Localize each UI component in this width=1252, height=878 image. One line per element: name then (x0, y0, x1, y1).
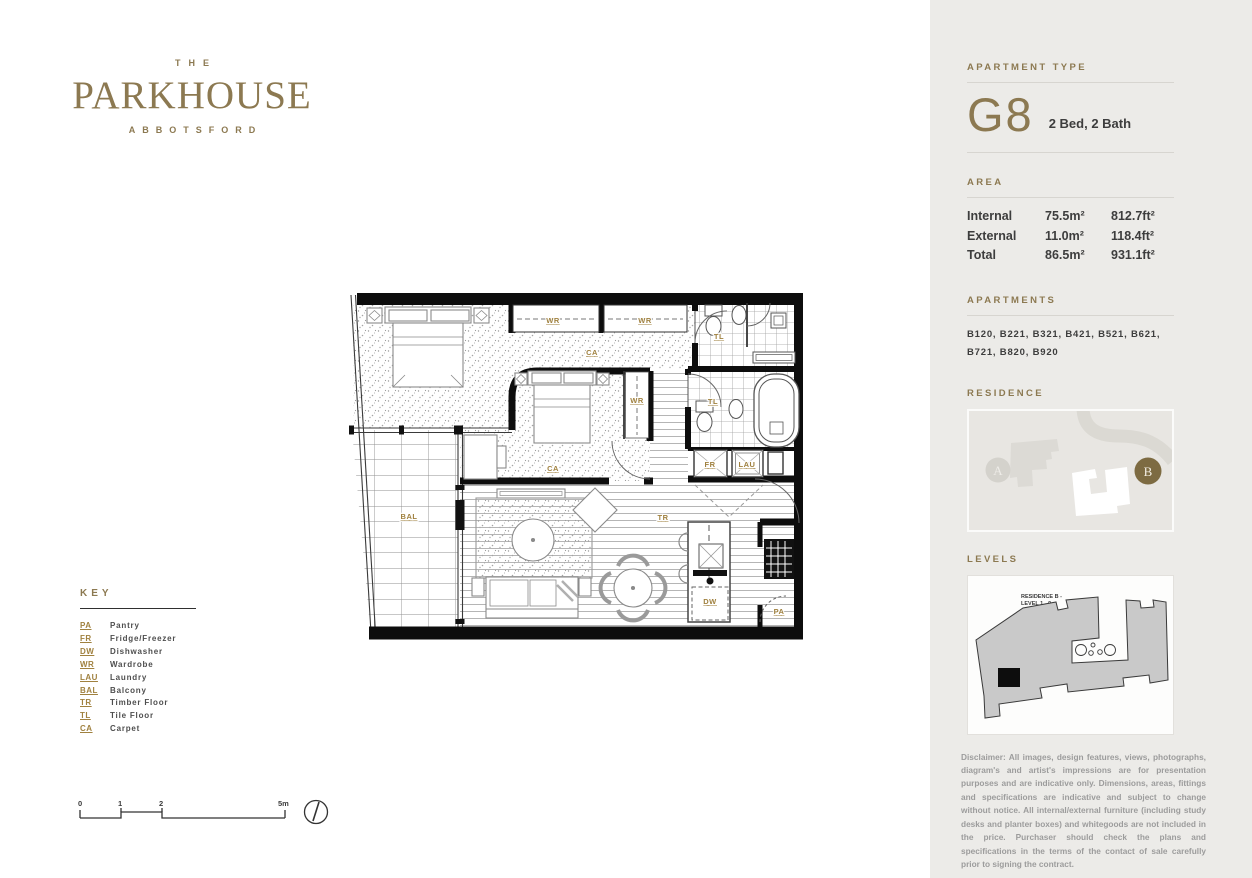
key-abbr: WR (80, 659, 110, 672)
scale-tick-2: 2 (159, 799, 163, 808)
key-abbr: LAU (80, 672, 110, 685)
key-divider (80, 608, 196, 609)
key-item: CACarpet (80, 723, 240, 736)
plan-label-tr: TR (658, 513, 669, 522)
area-row: External 11.0m² 118.4ft² (967, 227, 1216, 247)
key-abbr: TL (80, 710, 110, 723)
area-heading: AREA (967, 177, 1216, 188)
residence-map: A B (967, 409, 1174, 532)
apartment-type-desc: 2 Bed, 2 Bath (1049, 116, 1131, 131)
divider (967, 82, 1174, 83)
residence-heading: RESIDENCE (967, 388, 1216, 399)
levels-unit-highlight (998, 668, 1020, 687)
plan-label-bal: BAL (401, 512, 418, 521)
key-legend: KEY PAPantry FRFridge/Freezer DWDishwash… (80, 588, 240, 736)
area-row-ft2: 931.1ft² (1111, 246, 1155, 266)
key-label: Timber Floor (110, 697, 168, 710)
divider (967, 315, 1174, 316)
scale-line (80, 808, 285, 818)
key-item: LAULaundry (80, 672, 240, 685)
area-row: Total 86.5m² 931.1ft² (967, 246, 1216, 266)
levels-heading: LEVELS (967, 554, 1216, 565)
north-arrow-icon (305, 801, 328, 824)
apartment-type-code: G8 (967, 91, 1034, 138)
plan-label-lau: LAU (739, 460, 756, 469)
scale-bar: 0 1 2 5m (78, 797, 338, 842)
area-row-label: Total (967, 246, 1045, 266)
map-marker-b: B (1135, 457, 1162, 484)
key-label: Dishwasher (110, 646, 163, 659)
apartment-type-heading: APARTMENT TYPE (967, 62, 1216, 73)
key-abbr: CA (80, 723, 110, 736)
key-item: BALBalcony (80, 685, 240, 698)
key-abbr: FR (80, 633, 110, 646)
area-row-m2: 86.5m² (1045, 246, 1111, 266)
divider (967, 197, 1174, 198)
brand-suburb: ABBOTSFORD (72, 125, 312, 135)
key-abbr: DW (80, 646, 110, 659)
key-label: Wardrobe (110, 659, 153, 672)
brand-logo: THE PARKHOUSE ABBOTSFORD (72, 58, 312, 135)
plan-label-ca2: CA (547, 464, 559, 473)
area-row-m2: 75.5m² (1045, 207, 1111, 227)
area-table: Internal 75.5m² 812.7ft² External 11.0m²… (967, 207, 1216, 266)
scale-tick-0: 0 (78, 799, 82, 808)
key-heading: KEY (80, 588, 240, 599)
map-marker-b-label: B (1144, 464, 1153, 479)
apartments-list: B120, B221, B321, B421, B521, B621, B721… (967, 326, 1179, 363)
plan-label-fr: FR (705, 460, 716, 469)
floorplan: BAL WR WR CA TL WR TL FR LAU CA TR DW PA (347, 289, 805, 647)
levels-caption-line1: RESIDENCE B - (1021, 594, 1062, 600)
levels-diagram-svg: RESIDENCE B - LEVEL 1 - 9 (968, 576, 1173, 734)
area-row-m2: 11.0m² (1045, 227, 1111, 247)
disclaimer-text: Disclaimer: All images, design features,… (961, 751, 1206, 872)
key-label: Laundry (110, 672, 147, 685)
plan-label-wr1: WR (546, 316, 560, 325)
plan-label-ca1: CA (586, 348, 598, 357)
pantry-wall (764, 539, 794, 579)
plan-label-tl1: TL (714, 332, 724, 341)
levels-diagram: RESIDENCE B - LEVEL 1 - 9 (967, 575, 1174, 735)
key-label: Pantry (110, 620, 140, 633)
key-abbr: TR (80, 697, 110, 710)
balcony-floor (352, 430, 458, 628)
sidebar: APARTMENT TYPE G8 2 Bed, 2 Bath AREA Int… (930, 0, 1252, 878)
apartments-heading: APARTMENTS (967, 295, 1216, 306)
scale-bar-svg: 0 1 2 5m (78, 797, 338, 837)
brand-name: PARKHOUSE (72, 73, 312, 118)
key-item: PAPantry (80, 620, 240, 633)
residence-map-svg: A B (969, 411, 1172, 530)
plan-label-wr2: WR (638, 316, 652, 325)
area-row-ft2: 118.4ft² (1111, 227, 1154, 247)
divider (967, 152, 1174, 153)
brand-the: THE (72, 58, 312, 68)
map-marker-a-label: A (993, 463, 1003, 478)
plan-label-pa: PA (774, 607, 785, 616)
key-label: Balcony (110, 685, 147, 698)
key-label: Tile Floor (110, 710, 154, 723)
area-row: Internal 75.5m² 812.7ft² (967, 207, 1216, 227)
key-item: DWDishwasher (80, 646, 240, 659)
page: THE PARKHOUSE ABBOTSFORD (0, 0, 1252, 878)
area-row-ft2: 812.7ft² (1111, 207, 1155, 227)
area-row-label: Internal (967, 207, 1045, 227)
key-item: WRWardrobe (80, 659, 240, 672)
map-marker-a: A (986, 457, 1011, 482)
plan-label-dw: DW (703, 597, 717, 606)
key-item: TLTile Floor (80, 710, 240, 723)
levels-footprint (976, 597, 1168, 718)
floorplan-svg: BAL WR WR CA TL WR TL FR LAU CA TR DW PA (347, 289, 805, 642)
plan-label-tl2: TL (708, 397, 718, 406)
scale-tick-1: 1 (118, 799, 122, 808)
plan-label-wr3: WR (630, 396, 644, 405)
apartment-type-row: G8 2 Bed, 2 Bath (967, 91, 1216, 138)
levels-courtyard (1076, 643, 1116, 656)
key-label: Fridge/Freezer (110, 633, 176, 646)
scale-tick-5m: 5m (278, 799, 289, 808)
key-item: FRFridge/Freezer (80, 633, 240, 646)
key-item: TRTimber Floor (80, 697, 240, 710)
key-abbr: BAL (80, 685, 110, 698)
area-row-label: External (967, 227, 1045, 247)
key-label: Carpet (110, 723, 140, 736)
key-abbr: PA (80, 620, 110, 633)
